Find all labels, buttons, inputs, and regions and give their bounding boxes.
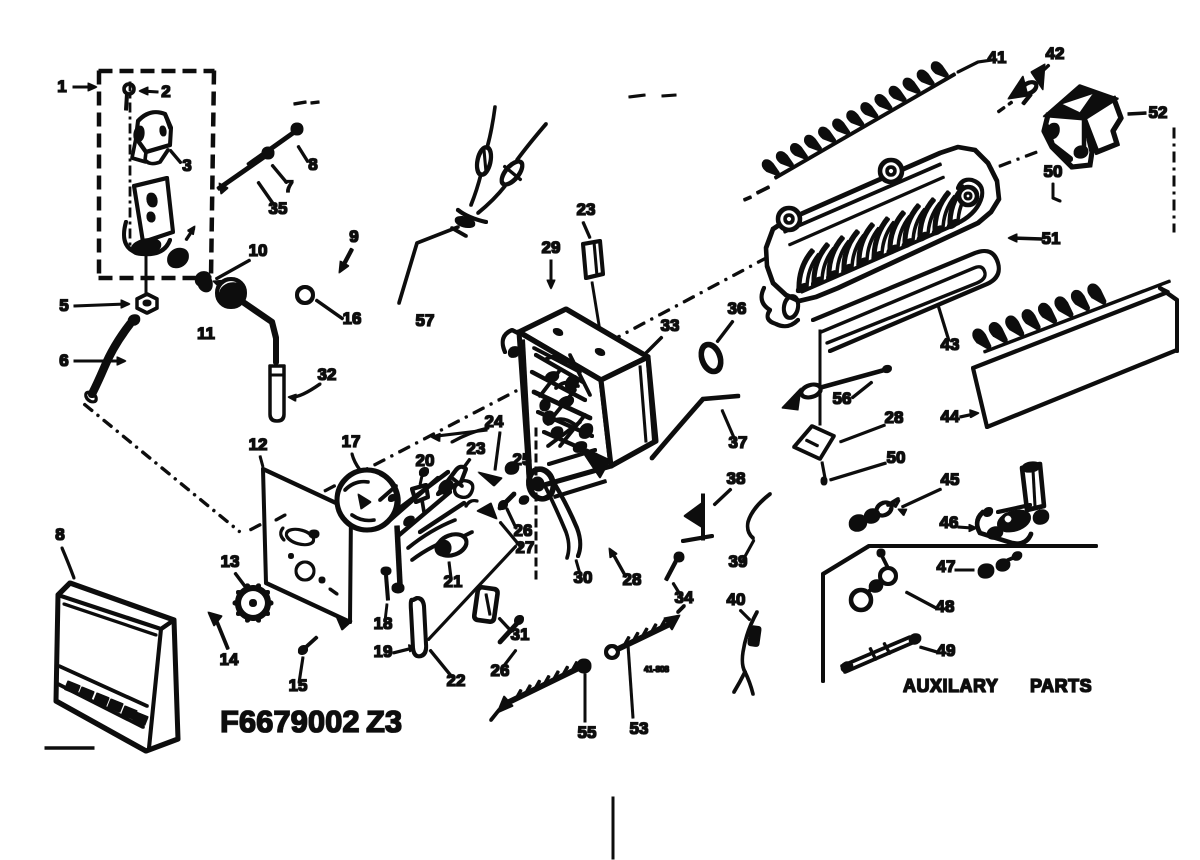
svg-text:23: 23 xyxy=(467,439,486,458)
svg-text:30: 30 xyxy=(574,568,593,587)
svg-text:51: 51 xyxy=(1042,229,1061,248)
svg-text:43: 43 xyxy=(941,335,960,354)
svg-text:PARTS: PARTS xyxy=(1030,676,1092,696)
svg-text:37: 37 xyxy=(729,433,748,452)
svg-text:19: 19 xyxy=(374,642,393,661)
svg-text:1: 1 xyxy=(57,77,66,96)
svg-text:20: 20 xyxy=(416,451,435,470)
svg-text:12: 12 xyxy=(249,435,268,454)
svg-text:23: 23 xyxy=(577,200,596,219)
svg-text:47: 47 xyxy=(937,557,956,576)
svg-text:32: 32 xyxy=(318,365,337,384)
svg-text:21: 21 xyxy=(444,572,463,591)
svg-text:Z3: Z3 xyxy=(366,704,402,739)
svg-text:39: 39 xyxy=(729,552,748,571)
svg-text:33: 33 xyxy=(661,316,680,335)
svg-text:5: 5 xyxy=(59,296,68,315)
svg-text:18: 18 xyxy=(374,614,393,633)
svg-text:27: 27 xyxy=(516,538,535,557)
svg-text:24: 24 xyxy=(485,412,504,431)
svg-text:50: 50 xyxy=(1044,162,1063,181)
svg-text:48: 48 xyxy=(936,597,955,616)
svg-text:7: 7 xyxy=(284,177,293,196)
svg-text:11: 11 xyxy=(197,324,215,343)
svg-text:16: 16 xyxy=(343,309,362,328)
svg-text:56: 56 xyxy=(833,389,852,408)
svg-text:13: 13 xyxy=(221,552,240,571)
svg-text:17: 17 xyxy=(342,432,361,451)
svg-text:29: 29 xyxy=(542,238,561,257)
svg-text:49: 49 xyxy=(937,641,956,660)
svg-text:41: 41 xyxy=(988,48,1007,67)
svg-text:6: 6 xyxy=(59,351,68,370)
svg-text:10: 10 xyxy=(249,241,268,260)
svg-text:53: 53 xyxy=(630,719,649,738)
svg-text:38: 38 xyxy=(727,469,746,488)
svg-text:36: 36 xyxy=(728,299,747,318)
svg-text:15: 15 xyxy=(289,676,308,695)
svg-text:40: 40 xyxy=(727,590,746,609)
svg-text:26: 26 xyxy=(491,661,510,680)
svg-text:55: 55 xyxy=(578,723,597,742)
svg-text:28: 28 xyxy=(623,570,642,589)
svg-text:57: 57 xyxy=(416,311,435,330)
svg-text:45: 45 xyxy=(941,470,960,489)
svg-text:AUXILARY: AUXILARY xyxy=(903,676,998,696)
svg-text:28: 28 xyxy=(885,408,904,427)
svg-text:8: 8 xyxy=(55,525,64,544)
svg-text:50: 50 xyxy=(887,448,906,467)
svg-text:46: 46 xyxy=(940,513,959,532)
svg-text:8: 8 xyxy=(308,155,317,174)
svg-text:2: 2 xyxy=(161,82,170,101)
svg-text:3: 3 xyxy=(182,156,191,175)
svg-text:44: 44 xyxy=(941,407,960,426)
svg-text:F6679002: F6679002 xyxy=(220,704,360,739)
svg-text:52: 52 xyxy=(1149,103,1168,122)
svg-text:42: 42 xyxy=(1046,44,1065,63)
svg-text:14: 14 xyxy=(220,650,239,669)
svg-text:9: 9 xyxy=(349,227,358,246)
svg-text:41-808: 41-808 xyxy=(644,665,669,674)
svg-text:25: 25 xyxy=(513,450,532,469)
